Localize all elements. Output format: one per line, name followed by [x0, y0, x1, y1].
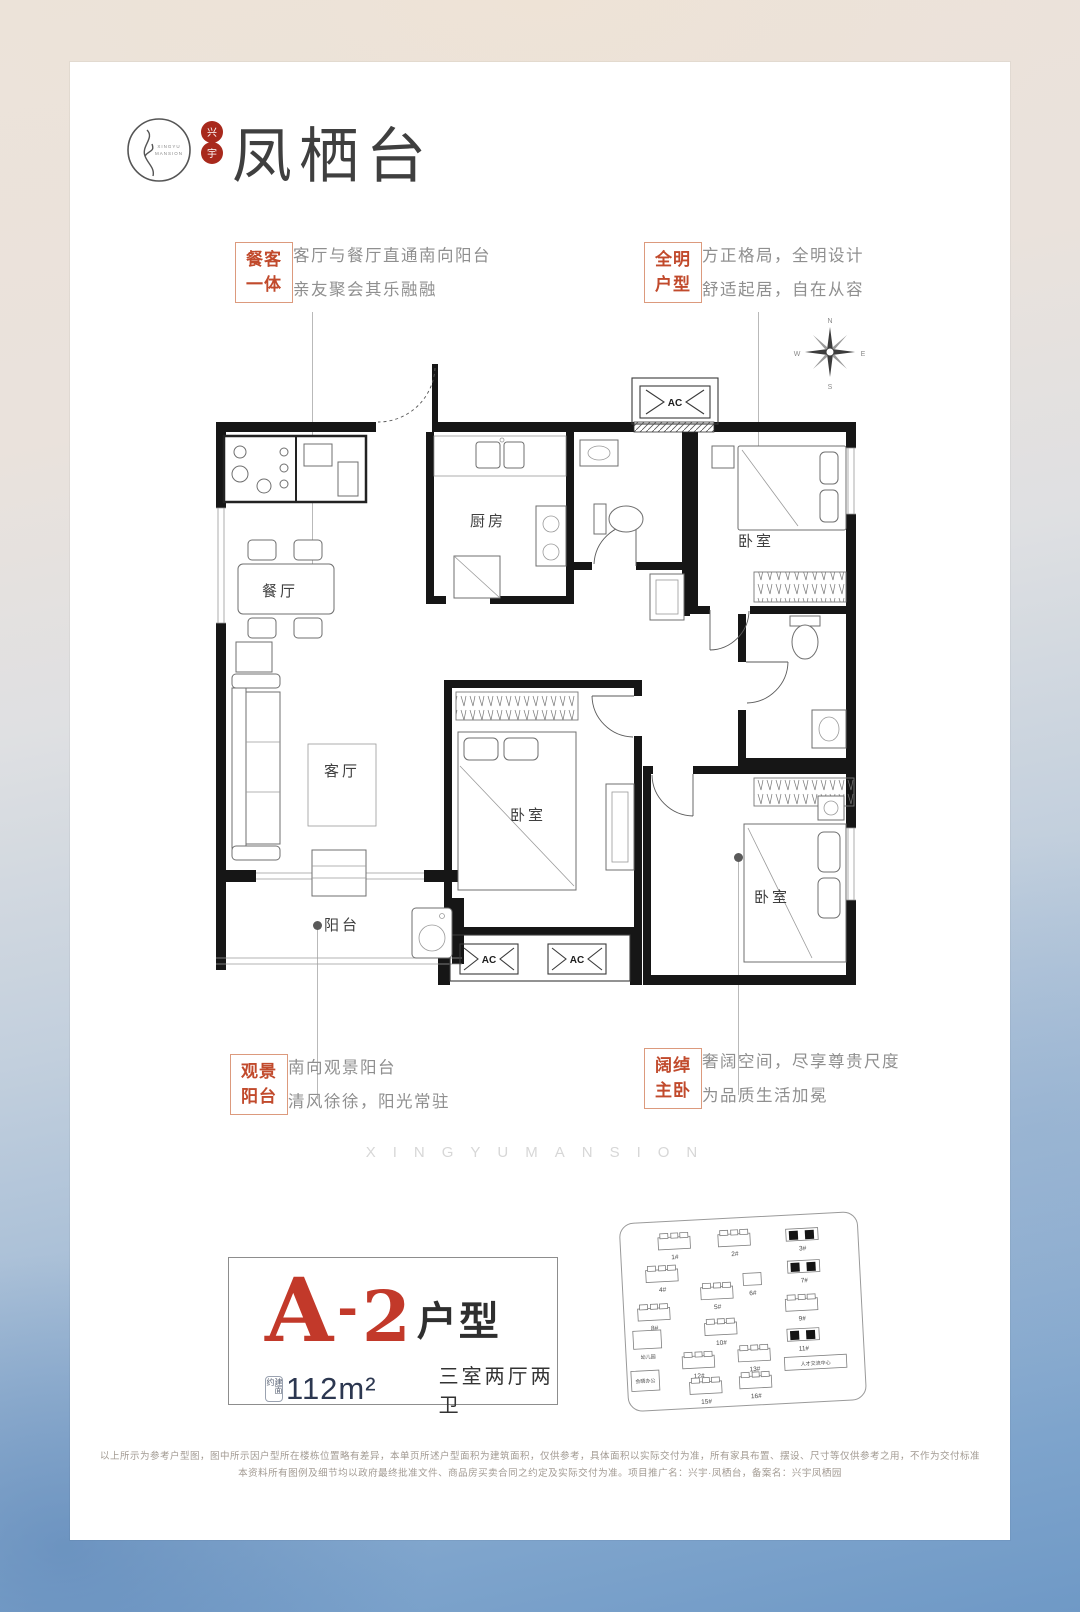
svg-text:1#: 1#: [671, 1254, 679, 1261]
siteplan-building-13: 13#: [738, 1344, 771, 1374]
bath1-fixtures: [580, 440, 684, 620]
svg-text:幼儿园: 幼儿园: [640, 1353, 655, 1361]
callout-desc-balcony-line1: 南向观景阳台: [288, 1052, 450, 1086]
siteplan-office: 会晤办公: [631, 1370, 660, 1391]
balcony-furniture: [412, 908, 452, 958]
svg-text:15#: 15#: [701, 1398, 713, 1406]
siteplan-building-15: 15#: [689, 1377, 722, 1407]
ac-label-bottom-2: AC: [570, 955, 584, 966]
callout-desc-balcony: 南向观景阳台 清风徐徐，阳光常驻: [288, 1052, 450, 1120]
utility-niche: [224, 436, 366, 502]
siteplan-building-7: 7#: [787, 1260, 820, 1286]
callout-tag-balcony-line2: 阳台: [237, 1085, 281, 1110]
unit-meta: 建面约 112m² 三室两厅两卫: [265, 1360, 557, 1418]
siteplan-building-12: 12#: [682, 1351, 715, 1381]
room-label-bedroom-north: 卧室: [738, 533, 774, 550]
callout-tag-dining-line1: 餐客: [242, 248, 286, 273]
compass-n: N: [827, 318, 832, 325]
ac-unit-top: AC: [632, 378, 718, 432]
callout-desc-bright: 方正格局，全明设计 舒适起居，自在从容: [702, 240, 864, 308]
callout-desc-dining-line1: 客厅与餐厅直通南向阳台: [293, 240, 491, 274]
logo-text-2: MANSION: [155, 151, 183, 156]
compass-w: W: [794, 351, 801, 358]
callout-desc-dining-line2: 亲友聚会其乐融融: [293, 274, 491, 308]
unit-layout: 三室两厅两卫: [439, 1360, 557, 1418]
siteplan-building-3: 3#: [786, 1228, 819, 1254]
callout-tag-bright-line2: 户型: [651, 273, 695, 298]
siteplan-building-9: 9#: [785, 1294, 818, 1324]
disclaimer-line2: 本资料所有图例及细节均以政府最终批准文件、商品房买卖合同之约定及实际交付为准。项…: [70, 1465, 1010, 1482]
poster-card: XINGYU MANSION 兴 宇 凤栖台 餐客 一体 客厅与餐厅直通南向阳台…: [70, 62, 1010, 1540]
unit-dash: -: [337, 1278, 358, 1337]
watermark-text: XINGYUMANSION: [70, 1144, 1010, 1161]
phoenix-icon: [144, 130, 153, 176]
room-label-bedroom-mid: 卧室: [510, 807, 546, 824]
callout-desc-master: 奢阔空间，尽享尊贵尺度 为品质生活加冕: [702, 1046, 900, 1114]
ac-platform-bottom: AC AC: [450, 935, 630, 981]
siteplan-kindergarten: 幼儿园: [633, 1330, 663, 1361]
callout-tag-balcony: 观景 阳台: [230, 1054, 288, 1115]
unit-area-value: 112m²: [286, 1371, 377, 1407]
siteplan-building-1: 1#: [658, 1232, 691, 1262]
callout-tag-master-line1: 阔绰: [651, 1054, 695, 1079]
callout-tag-balcony-line1: 观景: [237, 1060, 281, 1085]
door-arcs: [378, 368, 788, 816]
callout-desc-master-line2: 为品质生活加冕: [702, 1080, 900, 1114]
unit-name: A-2户型: [265, 1266, 501, 1354]
disclaimer: 以上所示为参考户型图，图中所示因户型所在楼栋位置略有差异，本单页所述户型面积为建…: [70, 1448, 1010, 1482]
svg-text:6#: 6#: [749, 1290, 757, 1297]
svg-text:11#: 11#: [799, 1345, 810, 1353]
bedroom-mid-furniture: [456, 692, 634, 890]
seal-char-1: 兴: [207, 127, 217, 139]
callout-tag-bright: 全明 户型: [644, 242, 702, 303]
room-label-balcony: 阳台: [324, 917, 360, 934]
disclaimer-line1: 以上所示为参考户型图，图中所示因户型所在楼栋位置略有差异，本单页所述户型面积为建…: [70, 1448, 1010, 1465]
siteplan-building-11: 11#: [787, 1328, 820, 1354]
logo-text-1: XINGYU: [157, 144, 180, 149]
svg-text:7#: 7#: [801, 1277, 809, 1284]
bedroom-master-furniture: [744, 778, 854, 962]
svg-text:16#: 16#: [751, 1393, 763, 1401]
svg-text:会晤办公: 会晤办公: [635, 1377, 655, 1385]
siteplan-building-4: 4#: [645, 1265, 678, 1295]
unit-area-label: 建面约: [265, 1376, 283, 1402]
unit-suffix: 户型: [417, 1300, 501, 1344]
svg-text:2#: 2#: [731, 1251, 739, 1258]
ac-label-top: AC: [668, 398, 682, 409]
master-bath-fixtures: [790, 616, 846, 748]
siteplan-talent-center: 人才交流中心: [784, 1354, 847, 1370]
svg-text:10#: 10#: [716, 1339, 728, 1347]
callout-desc-bright-line2: 舒适起居，自在从容: [702, 274, 864, 308]
unit-info-box: A-2户型 建面约 112m² 三室两厅两卫: [228, 1257, 558, 1405]
callout-desc-bright-line1: 方正格局，全明设计: [702, 240, 864, 274]
seal-char-2: 宇: [207, 147, 217, 160]
siteplan-building-6: 6#: [743, 1273, 762, 1298]
floor-plan: AC AC AC: [198, 358, 870, 1008]
callout-desc-balcony-line2: 清风徐徐，阳光常驻: [288, 1086, 450, 1120]
compass-e: E: [861, 351, 866, 358]
callout-desc-dining: 客厅与餐厅直通南向阳台 亲友聚会其乐融融: [293, 240, 491, 308]
svg-text:3#: 3#: [799, 1245, 807, 1252]
callout-tag-dining: 餐客 一体: [235, 242, 293, 303]
svg-text:5#: 5#: [714, 1304, 722, 1311]
room-label-dining: 餐厅: [262, 583, 298, 600]
callout-desc-master-line1: 奢阔空间，尽享尊贵尺度: [702, 1046, 900, 1080]
unit-letter: A: [265, 1258, 333, 1362]
bedroom-north-furniture: [712, 446, 846, 602]
poster-background: { "brand": { "logo_text_1": "XINGYU", "l…: [0, 0, 1080, 1612]
room-label-bedroom-master: 卧室: [754, 889, 790, 906]
project-title: 凤栖台: [232, 108, 433, 195]
room-label-living: 客厅: [324, 763, 360, 780]
svg-text:9#: 9#: [799, 1315, 807, 1322]
callout-tag-master-line2: 主卧: [651, 1079, 695, 1104]
siteplan-building-8: 8#: [637, 1303, 670, 1333]
unit-number: 2: [362, 1275, 411, 1358]
siteplan-building-5: 5#: [700, 1282, 733, 1312]
callout-tag-dining-line2: 一体: [242, 273, 286, 298]
svg-text:4#: 4#: [659, 1287, 667, 1294]
siteplan-building-2: 2#: [718, 1229, 751, 1259]
callout-tag-master: 阔绰 主卧: [644, 1048, 702, 1109]
logo-circle-ring: [128, 119, 190, 181]
site-plan: 1# 2# 3# 4# 6#: [590, 1208, 880, 1420]
ac-label-bottom-1: AC: [482, 955, 496, 966]
brand-logo: XINGYU MANSION: [125, 116, 193, 184]
siteplan-building-10: 10#: [704, 1318, 737, 1348]
room-label-kitchen: 厨房: [470, 513, 506, 530]
brand-seal: 兴 宇: [199, 120, 225, 166]
callout-tag-bright-line1: 全明: [651, 248, 695, 273]
siteplan-building-16: 16#: [739, 1371, 772, 1401]
